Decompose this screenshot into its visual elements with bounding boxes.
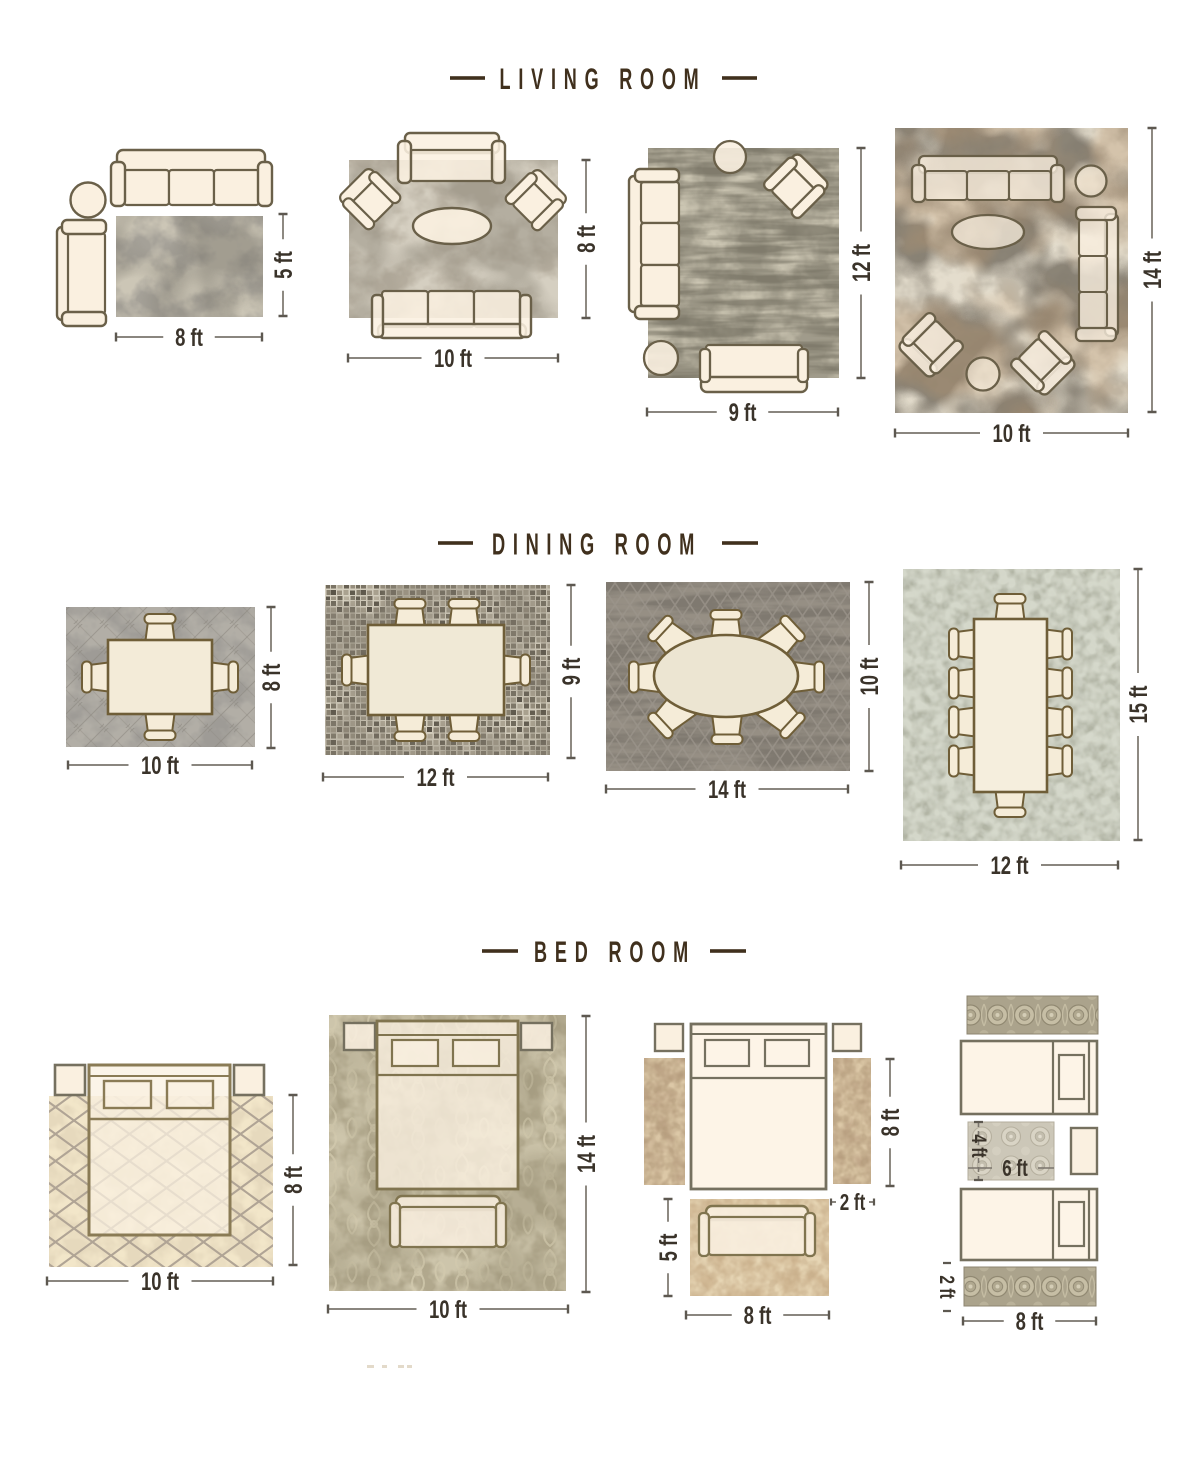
svg-text:8 ft: 8 ft [257, 663, 285, 691]
svg-text:8 ft: 8 ft [279, 1166, 307, 1194]
svg-text:12 ft: 12 ft [847, 243, 875, 282]
svg-text:BED ROOM: BED ROOM [534, 936, 696, 969]
svg-text:5 ft: 5 ft [654, 1233, 682, 1261]
svg-text:10 ft: 10 ft [855, 657, 883, 696]
svg-text:14 ft: 14 ft [1138, 250, 1166, 289]
svg-text:8 ft: 8 ft [1016, 1307, 1044, 1335]
svg-text:9 ft: 9 ft [557, 657, 585, 685]
svg-text:10 ft: 10 ft [141, 1267, 180, 1295]
svg-text:12 ft: 12 ft [990, 851, 1029, 879]
svg-text:14 ft: 14 ft [572, 1134, 600, 1173]
svg-text:10 ft: 10 ft [141, 751, 180, 779]
svg-text:8 ft: 8 ft [744, 1301, 772, 1329]
svg-text:6 ft: 6 ft [1002, 1157, 1028, 1182]
svg-text:8 ft: 8 ft [175, 323, 203, 351]
svg-text:15 ft: 15 ft [1124, 685, 1152, 724]
svg-text:10 ft: 10 ft [434, 344, 473, 372]
svg-text:12 ft: 12 ft [416, 763, 455, 791]
svg-text:9 ft: 9 ft [729, 398, 757, 426]
svg-text:2 ft: 2 ft [840, 1191, 866, 1216]
svg-text:8 ft: 8 ft [572, 225, 600, 253]
svg-text:2 ft: 2 ft [935, 1275, 959, 1298]
svg-text:5 ft: 5 ft [269, 251, 297, 279]
svg-text:DINING ROOM: DINING ROOM [492, 526, 702, 561]
svg-text:14 ft: 14 ft [708, 775, 747, 803]
svg-text:8 ft: 8 ft [876, 1108, 904, 1136]
svg-text:10 ft: 10 ft [992, 419, 1031, 447]
svg-text:4 ft: 4 ft [967, 1134, 991, 1157]
svg-text:LIVING ROOM: LIVING ROOM [500, 63, 707, 96]
svg-text:10 ft: 10 ft [429, 1295, 468, 1323]
